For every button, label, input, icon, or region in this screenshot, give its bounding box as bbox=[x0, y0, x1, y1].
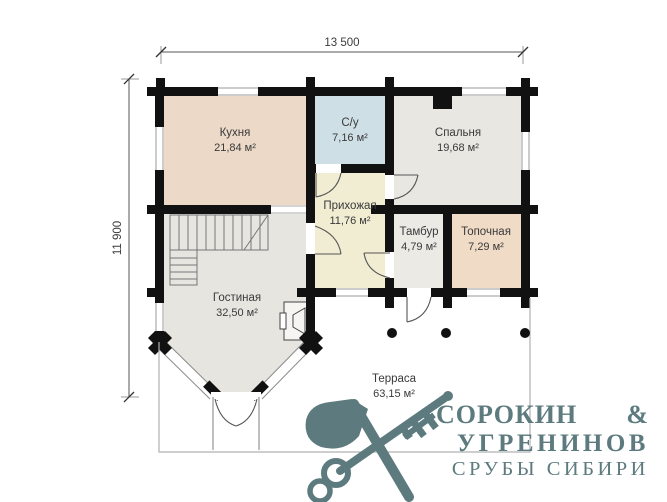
room-name: Кухня bbox=[220, 127, 251, 139]
column-dot bbox=[387, 328, 397, 338]
wall-bedroom-south bbox=[385, 205, 530, 214]
terrace-columns bbox=[387, 328, 530, 338]
room-name: Топочная bbox=[461, 226, 511, 238]
room-name: Прихожая bbox=[323, 200, 376, 212]
wall-east bbox=[521, 87, 530, 297]
window bbox=[467, 288, 500, 297]
room-label-living: Гостиная 32,50 м² bbox=[177, 291, 297, 320]
room-area: 19,68 м² bbox=[398, 141, 518, 155]
logo-ampersand: & bbox=[626, 401, 649, 430]
logo-emblem bbox=[306, 391, 453, 501]
company-logo: СОРОКИН & УГРЕНИНОВ СРУБЫ СИБИРИ bbox=[436, 401, 649, 481]
room-name: С/у bbox=[341, 117, 358, 129]
room-area: 4,79 м² bbox=[384, 240, 454, 254]
window bbox=[155, 127, 164, 170]
room-label-kitchen: Кухня 21,84 м² bbox=[175, 126, 295, 155]
room-name: Тамбур bbox=[399, 226, 438, 238]
room-label-bedroom: Спальня 19,68 м² bbox=[398, 126, 518, 155]
floor-plan-page: Кухня 21,84 м² С/у 7,16 м² Спальня 19,68… bbox=[0, 0, 667, 502]
room-label-vestibule: Тамбур 4,79 м² bbox=[384, 225, 454, 254]
room-hallway-fill bbox=[306, 164, 394, 297]
dimension-width-label: 13 500 bbox=[292, 37, 392, 49]
window bbox=[462, 87, 506, 96]
room-area: 32,50 м² bbox=[177, 306, 297, 320]
logo-partner1-line: СОРОКИН & bbox=[436, 401, 649, 430]
window bbox=[218, 87, 258, 96]
room-label-terrace: Терраса 63,15 м² bbox=[354, 372, 434, 401]
logo-tagline: СРУБЫ СИБИРИ bbox=[436, 458, 649, 482]
double-door bbox=[211, 392, 261, 450]
dimension-height-label: 11 900 bbox=[112, 208, 126, 268]
room-label-bathroom: С/у 7,16 м² bbox=[310, 116, 390, 145]
window bbox=[155, 303, 164, 331]
column-dot bbox=[441, 328, 451, 338]
room-area: 21,84 м² bbox=[175, 141, 295, 155]
column-dot bbox=[520, 328, 530, 338]
room-label-hallway: Прихожая 11,76 м² bbox=[310, 199, 390, 228]
room-name: Гостиная bbox=[213, 292, 261, 304]
room-label-boiler: Топочная 7,29 м² bbox=[446, 225, 526, 254]
wall-opening bbox=[271, 205, 306, 214]
logo-partner2-line: УГРЕНИНОВ bbox=[436, 430, 649, 458]
room-area: 63,15 м² bbox=[354, 387, 434, 401]
window bbox=[521, 132, 530, 170]
room-area: 7,29 м² bbox=[446, 240, 526, 254]
room-name: Спальня bbox=[435, 127, 481, 139]
room-name: Терраса bbox=[372, 373, 416, 385]
logo-partner1: СОРОКИН bbox=[436, 401, 577, 430]
room-area: 7,16 м² bbox=[310, 131, 390, 145]
door-swing bbox=[407, 288, 431, 322]
room-area: 11,76 м² bbox=[310, 214, 390, 228]
window bbox=[336, 288, 368, 297]
